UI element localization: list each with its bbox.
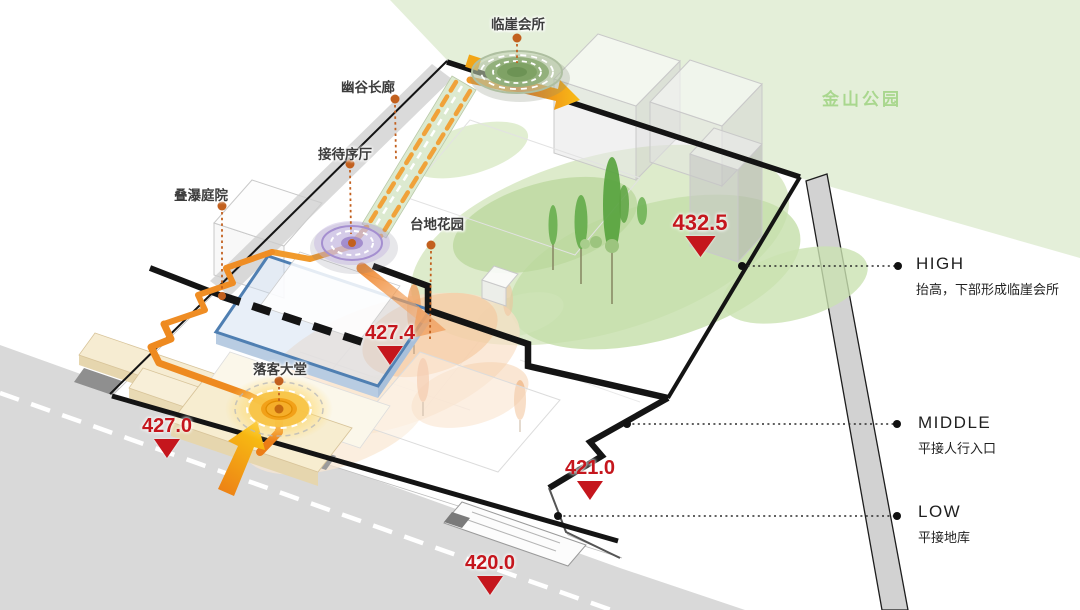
- elevation-marker-421-0: 421.0: [565, 458, 615, 500]
- terrace-garden-label: 台地花园: [410, 213, 464, 233]
- annotation-desc: 平接地库: [918, 527, 970, 546]
- annotation-desc: 平接人行入口: [918, 438, 996, 457]
- annotation-title: HIGH: [916, 254, 1059, 274]
- elevation-value: 432.5: [672, 211, 727, 234]
- annotation-title: MIDDLE: [918, 413, 996, 433]
- elevation-triangle-icon: [577, 481, 603, 500]
- annotation-high: HIGH 抬高，下部形成临崖会所: [916, 254, 1059, 298]
- annotation-title: LOW: [918, 502, 970, 522]
- elevation-value: 420.0: [465, 553, 515, 574]
- elevation-triangle-icon: [154, 439, 180, 458]
- east-road: [806, 174, 908, 610]
- elevation-marker-427-4: 427.4: [365, 323, 415, 365]
- elevation-value: 421.0: [565, 458, 615, 479]
- elevation-value: 427.0: [142, 416, 192, 437]
- elevation-triangle-icon: [685, 236, 715, 257]
- cliff-club-label: 临崖会所: [491, 13, 545, 33]
- annotation-middle: MIDDLE 平接人行入口: [918, 413, 996, 457]
- site-analysis-diagram: 金山公园 临崖会所 幽谷长廊 接待序厅 叠瀑庭院 台地花园 落客大堂 432.5…: [0, 0, 1080, 610]
- elevation-marker-427-0: 427.0: [142, 416, 192, 458]
- dropoff-hall-label: 落客大堂: [253, 358, 307, 378]
- cascade-courtyard-label: 叠瀑庭院: [174, 184, 228, 204]
- annotation-desc: 抬高，下部形成临崖会所: [916, 279, 1059, 298]
- reception-hall-label: 接待序厅: [318, 143, 372, 163]
- elevation-value: 427.4: [365, 323, 415, 344]
- park-label: 金山公园: [822, 85, 902, 110]
- elevation-triangle-icon: [477, 576, 503, 595]
- valley-corridor-label: 幽谷长廊: [341, 76, 395, 96]
- elevation-marker-432-5: 432.5: [672, 211, 727, 257]
- elevation-triangle-icon: [377, 346, 403, 365]
- elevation-marker-420-0: 420.0: [465, 553, 515, 595]
- annotation-low: LOW 平接地库: [918, 502, 970, 546]
